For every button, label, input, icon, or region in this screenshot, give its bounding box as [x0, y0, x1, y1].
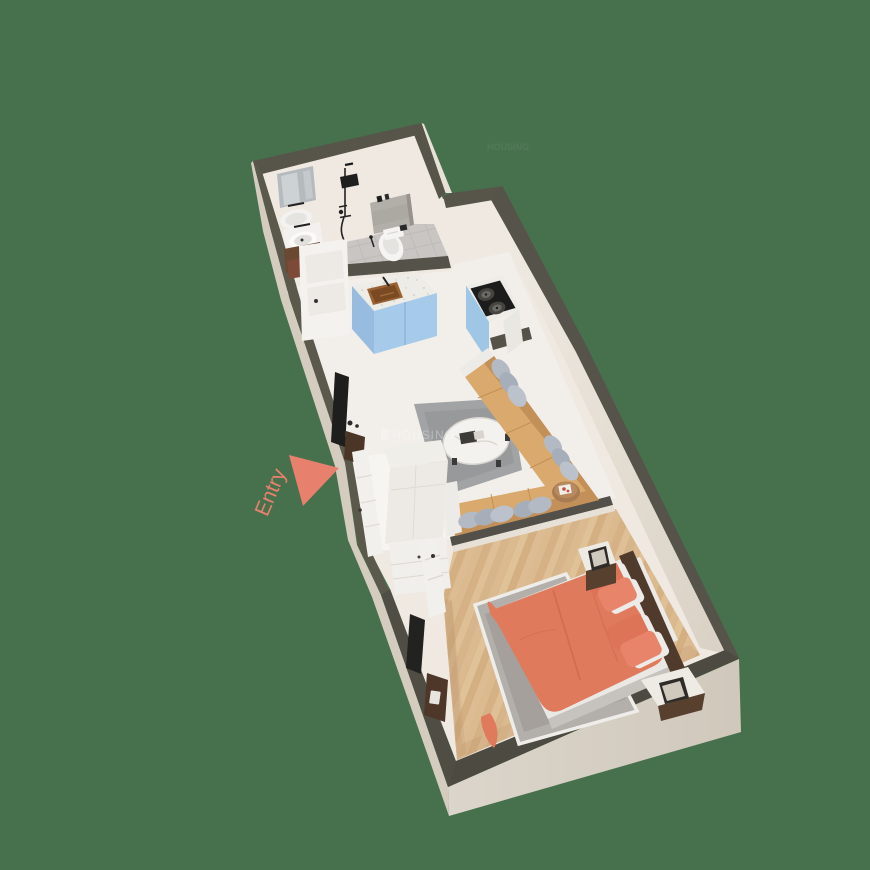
svg-text:HOUSING: HOUSING: [487, 142, 529, 152]
svg-text:HOUSING: HOUSING: [392, 428, 455, 442]
